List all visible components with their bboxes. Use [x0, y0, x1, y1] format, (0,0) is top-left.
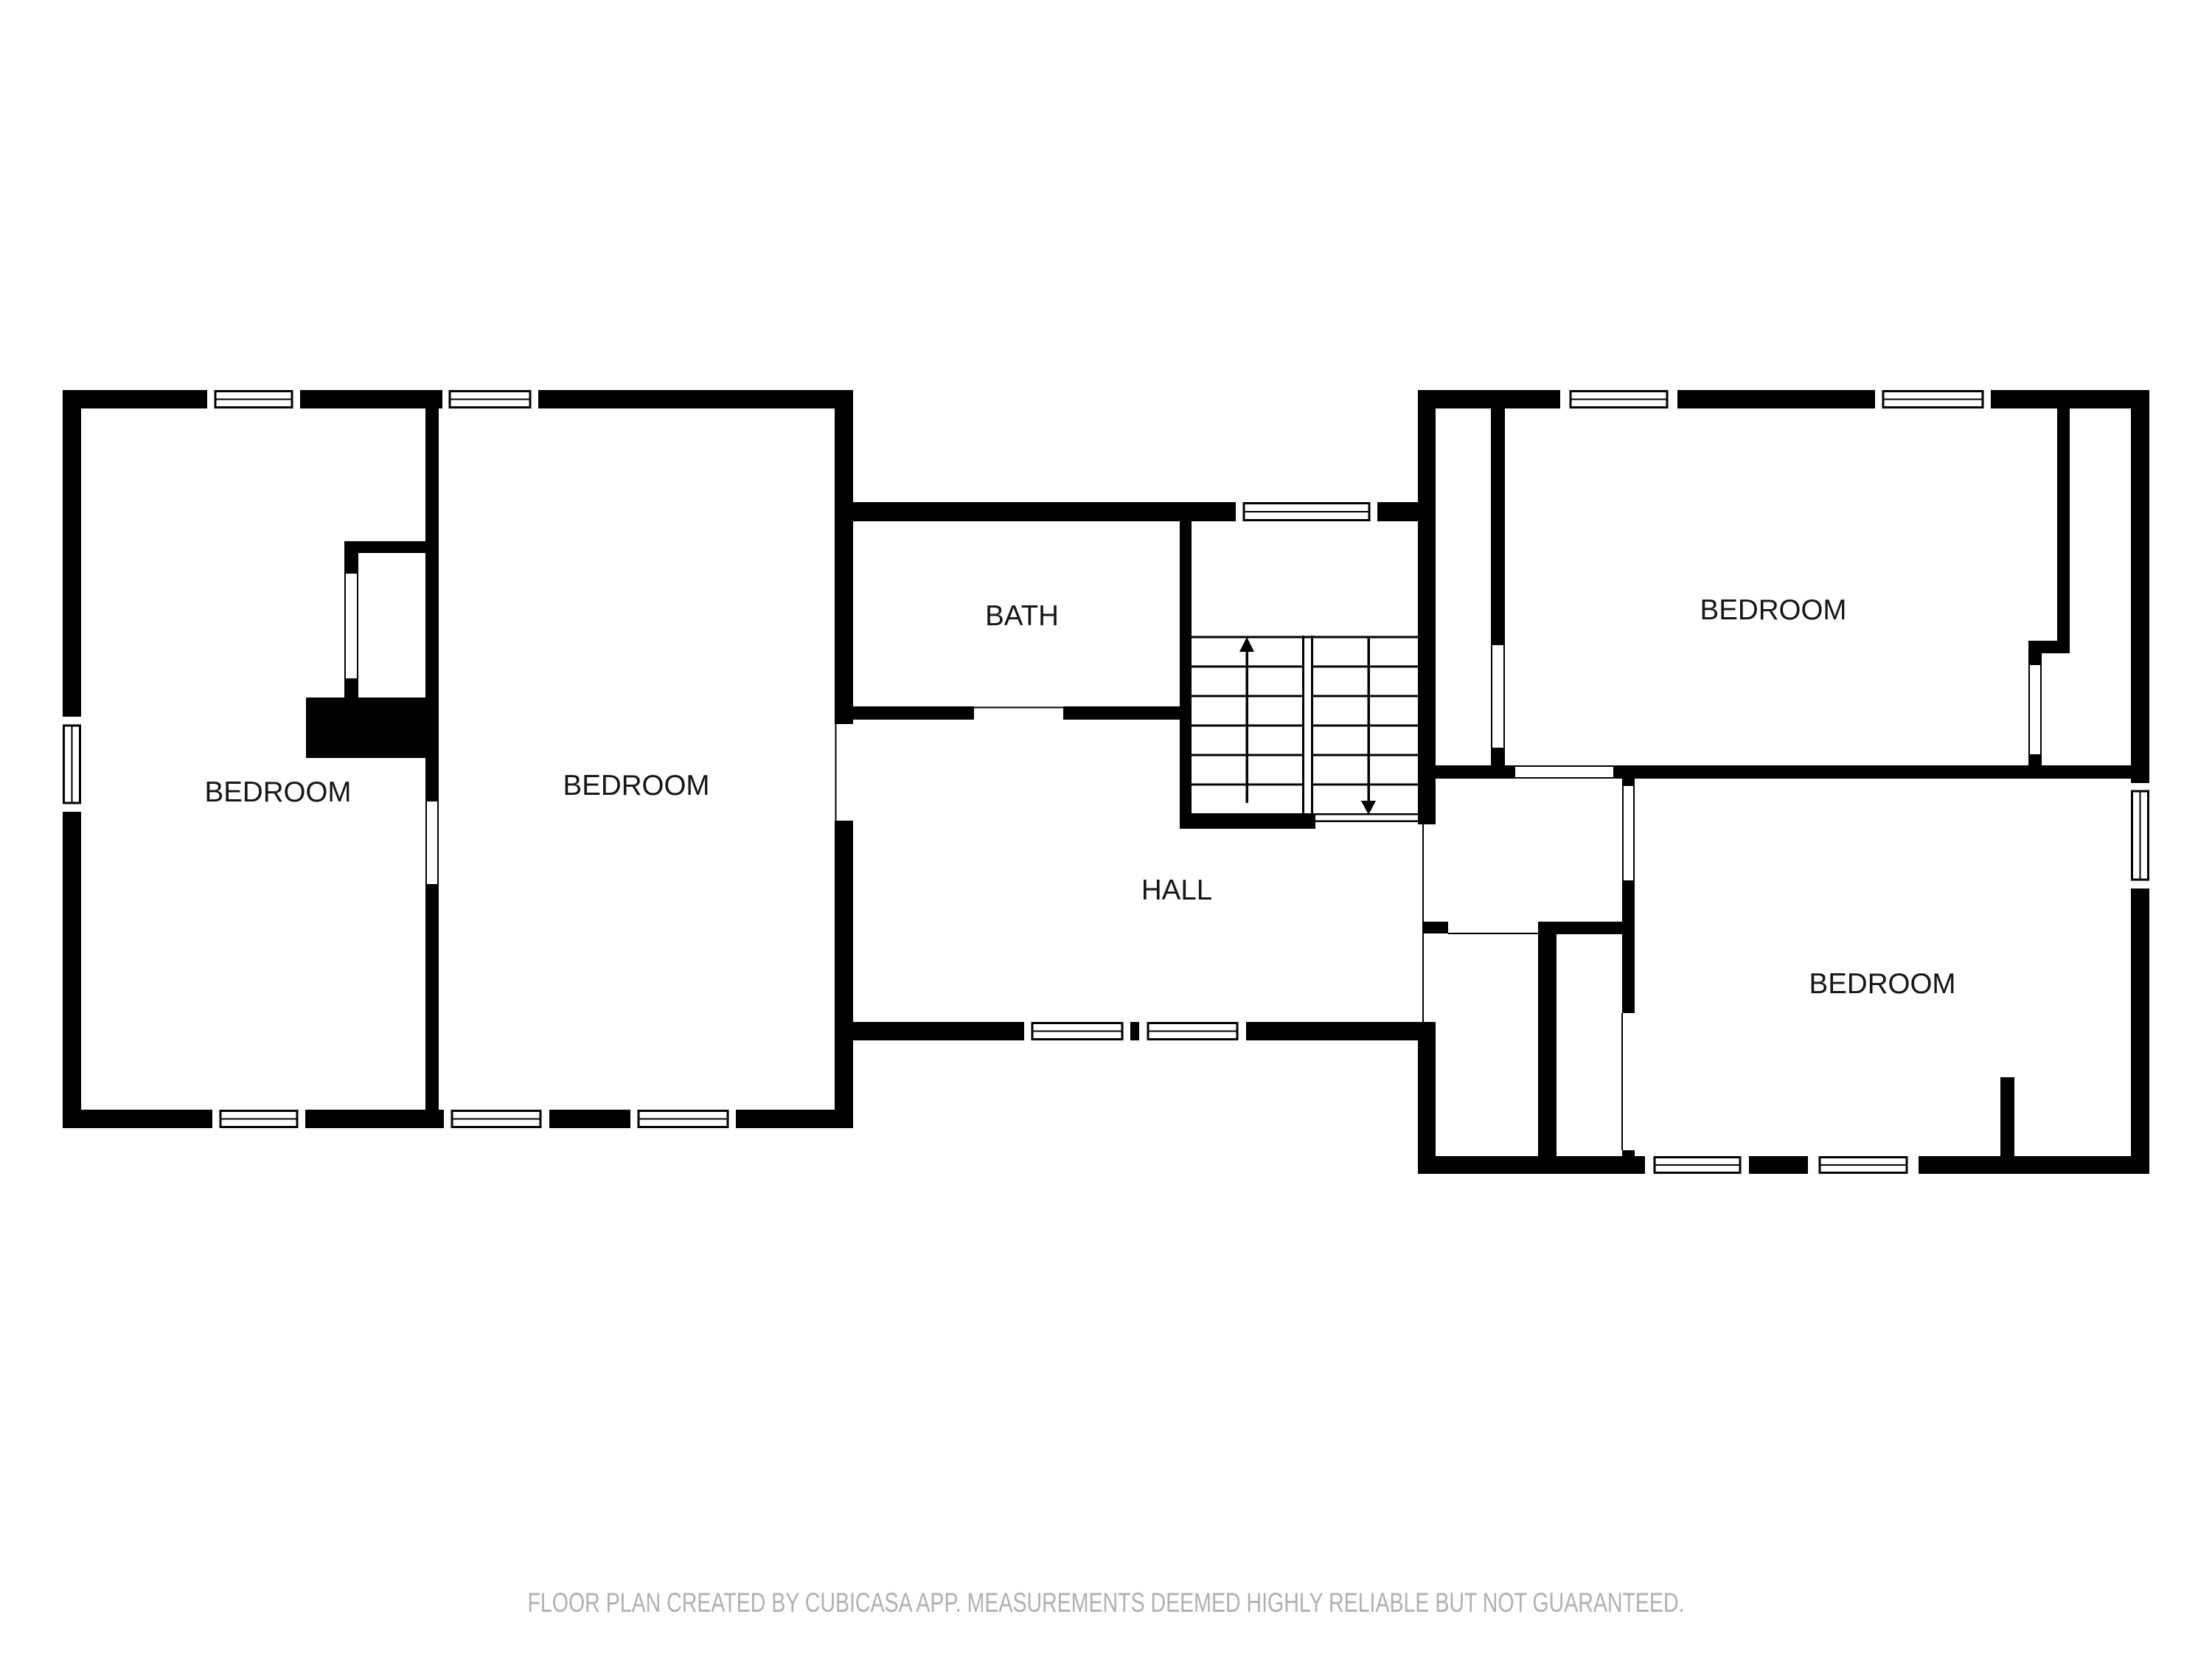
svg-text:BEDROOM: BEDROOM	[1700, 594, 1847, 626]
svg-text:HALL: HALL	[1141, 874, 1212, 906]
svg-text:BATH: BATH	[985, 600, 1059, 632]
svg-text:BEDROOM: BEDROOM	[205, 776, 352, 808]
svg-text:BEDROOM: BEDROOM	[1809, 968, 1956, 1000]
svg-text:FLOOR PLAN CREATED BY CUBICASA: FLOOR PLAN CREATED BY CUBICASA APP. MEAS…	[528, 1587, 1685, 1618]
svg-text:BEDROOM: BEDROOM	[563, 770, 710, 801]
